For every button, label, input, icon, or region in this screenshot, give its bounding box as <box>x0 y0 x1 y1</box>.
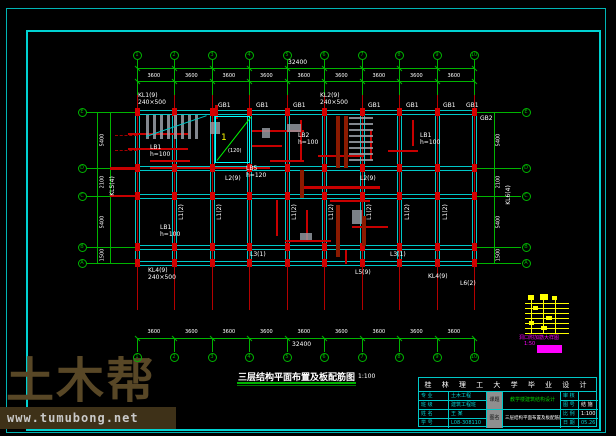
rebar-bar <box>285 240 331 242</box>
dim-text: 3600 <box>260 330 273 335</box>
legend-cell <box>540 294 548 300</box>
legend-table-line <box>555 300 556 333</box>
tb-label-major: 专 业 <box>419 392 449 401</box>
column-mark <box>285 108 290 116</box>
tb-label-scale: 比 例 <box>561 410 579 419</box>
tb-value-check <box>579 392 598 401</box>
axis-bubble-bottom: 7 <box>358 353 367 362</box>
axis-bubble-bottom: 2 <box>170 353 179 362</box>
beam-label: L1(2) <box>329 204 335 220</box>
watermark-logo: 土木帮 <box>6 356 156 406</box>
dim-text: 3600 <box>298 74 311 79</box>
beam-horizontal <box>135 194 476 199</box>
column-mark <box>397 192 402 200</box>
column-mark <box>472 108 477 116</box>
axis-stem <box>174 60 175 95</box>
stair-tread-hatch <box>349 159 373 161</box>
dim-text: 3600 <box>335 330 348 335</box>
title-underline-thin <box>237 385 356 386</box>
axis-bubble-left: E <box>78 108 87 117</box>
column-mark <box>472 192 477 200</box>
rebar-bar <box>330 200 370 202</box>
hatch-blob <box>352 210 362 224</box>
dim-text-vert: 1500 <box>101 249 106 262</box>
rebar-bar <box>252 145 282 147</box>
axis-bubble-bottom: 1 <box>133 353 142 362</box>
dim-text: 3600 <box>298 330 311 335</box>
axis-bubble-bottom: 10 <box>470 353 479 362</box>
rebar-bar <box>345 250 347 264</box>
axis-bubble-left: C <box>78 192 87 201</box>
tb-key-dwgname: 图名 <box>487 410 503 428</box>
axis-stem <box>137 60 138 95</box>
title-block-header: 桂 林 理 工 大 学 毕 业 设 计 <box>419 378 596 392</box>
tb-value-dwgno: 结 施 <box>579 401 598 410</box>
dim-text-total: 32400 <box>292 342 311 348</box>
column-mark <box>322 243 327 251</box>
beam-label: h=100 <box>150 152 170 158</box>
axis-bubble-top: 3 <box>208 51 217 60</box>
axis-line-red <box>287 265 288 310</box>
column-mark <box>210 108 215 116</box>
dim-text: 3600 <box>373 330 386 335</box>
legend-table-line <box>525 333 569 334</box>
column-mark <box>435 192 440 200</box>
column-mark <box>435 164 440 172</box>
stair-tread-hatch <box>349 147 373 149</box>
dim-text-vert: 5400 <box>101 134 106 147</box>
axis-bubble-top: 4 <box>245 51 254 60</box>
axis-bubble-top: 6 <box>320 51 329 60</box>
dim-text-vert: 2100 <box>497 176 502 189</box>
axis-bubble-top: 7 <box>358 51 367 60</box>
rebar-bar <box>412 120 414 146</box>
dim-text: 3600 <box>335 74 348 79</box>
dim-text-vert: 5400 <box>497 134 502 147</box>
column-mark <box>285 164 290 172</box>
dim-text: 3600 <box>260 74 273 79</box>
axis-stem <box>437 60 438 95</box>
tb-value-major: 土木工程 <box>449 392 487 401</box>
beam-label: KL4(9) <box>428 274 448 280</box>
tb-value-class: 建筑工程班 <box>449 401 487 410</box>
beam-label: GB2 <box>480 116 493 122</box>
tb-value-name: 王 某 <box>449 410 487 419</box>
column-mark <box>322 108 327 116</box>
beam-label: L2(9) <box>360 176 376 182</box>
hatch-blob <box>300 233 312 240</box>
stair-tread-hatch <box>349 129 373 131</box>
axis-line-red <box>324 265 325 310</box>
stair-tread-hatch <box>160 115 163 139</box>
beam-label: L2(9) <box>225 176 241 182</box>
column-mark <box>247 192 252 200</box>
axis-bubble-bottom: 8 <box>395 353 404 362</box>
axis-bubble-left: D <box>78 164 87 173</box>
beam-label: GB1 <box>293 103 306 109</box>
tb-label-date: 日 期 <box>561 419 579 428</box>
axis-bubble-right: A <box>522 259 531 268</box>
stair-tread-hatch <box>349 135 373 137</box>
axis-line-red <box>474 265 475 310</box>
axis-bubble-bottom: 5 <box>283 353 292 362</box>
beam-horizontal <box>135 110 476 115</box>
tb-value-id: L08-308110 <box>449 419 487 428</box>
beam-vertical <box>435 110 440 265</box>
hatch-blob <box>287 124 301 132</box>
dim-text: 3600 <box>185 74 198 79</box>
axis-bubble-right: C <box>522 192 531 201</box>
dim-text-vert: 2100 <box>101 176 106 189</box>
rebar-bar <box>318 155 364 157</box>
wall-mark <box>344 116 348 168</box>
beam-label: h=120 <box>246 173 266 179</box>
dim-text-total: 32400 <box>288 60 307 66</box>
wall-mark <box>336 205 340 257</box>
rebar-bar <box>352 226 388 228</box>
dim-text: 3600 <box>223 74 236 79</box>
axis-stem <box>324 60 325 95</box>
column-mark <box>472 164 477 172</box>
wall-mark <box>336 116 340 168</box>
rebar-bar <box>150 160 190 162</box>
tb-subject: 教学楼建筑结构设计 <box>503 392 561 410</box>
tb-key-subject: 课题 <box>487 392 503 410</box>
column-mark <box>322 192 327 200</box>
dim-text: 3600 <box>448 330 461 335</box>
column-mark <box>472 243 477 251</box>
beam-label: L1(2) <box>405 204 411 220</box>
axis-stub <box>474 263 521 264</box>
axis-bubble-right: D <box>522 164 531 173</box>
tb-value-date: 05.26 <box>579 419 598 428</box>
tb-label-check: 审 核 <box>561 392 579 401</box>
tb-label-name: 姓 名 <box>419 410 449 419</box>
dim-text: 3600 <box>448 74 461 79</box>
axis-bubble-bottom: 9 <box>433 353 442 362</box>
detail-number: 1 <box>221 134 227 143</box>
beam-label: L1(2) <box>443 204 449 220</box>
dim-line-top-total <box>137 68 474 69</box>
column-mark <box>360 108 365 116</box>
stair-tread-hatch <box>349 123 373 125</box>
column-mark <box>172 243 177 251</box>
axis-stem <box>212 60 213 95</box>
beam-label: L3(1) <box>250 252 266 258</box>
watermark-url: www.tumubong.net <box>7 411 139 425</box>
column-mark <box>435 108 440 116</box>
dim-text: 3600 <box>223 330 236 335</box>
column-mark <box>322 164 327 172</box>
stair-tread-hatch <box>153 115 156 139</box>
legend-cell <box>528 295 534 300</box>
rebar-bar <box>388 150 418 152</box>
legend-cell <box>541 326 547 330</box>
axis-line-red <box>174 265 175 310</box>
stair-tread-hatch <box>349 153 373 155</box>
stair-tread-hatch <box>349 141 373 143</box>
dim-chain-left <box>97 112 98 263</box>
tb-label-dwgno: 图 号 <box>561 401 579 410</box>
beam-label: 240×500 <box>138 100 166 106</box>
drawing-scale: 1:100 <box>358 373 375 380</box>
tb-dwgname: 三层结构平面布置及板配筋图 <box>503 410 561 428</box>
axis-line-red <box>399 265 400 310</box>
axis-stem <box>474 60 475 95</box>
dim-text: 3600 <box>373 74 386 79</box>
column-mark <box>285 243 290 251</box>
axis-line-red <box>437 265 438 310</box>
rebar-dashed <box>115 135 137 136</box>
beam-label: KL5(4) <box>110 176 116 196</box>
beam-label: GB1 <box>443 103 456 109</box>
axis-bubble-left: B <box>78 243 87 252</box>
beam-label: GB1 <box>218 103 231 109</box>
rebar-bar <box>300 186 380 189</box>
axis-stub <box>87 263 137 264</box>
axis-bubble-right: B <box>522 243 531 252</box>
axis-stub <box>87 112 137 113</box>
stair-tread-hatch <box>349 117 373 119</box>
rebar-bar <box>276 200 278 236</box>
axis-stem <box>249 60 250 95</box>
legend-cell <box>529 321 534 325</box>
axis-stem <box>362 60 363 95</box>
stair-tread-hatch <box>181 115 184 139</box>
axis-bubble-right: E <box>522 108 531 117</box>
beam-label: GB1 <box>466 103 479 109</box>
cad-drawing-viewport[interactable]: 三层结构平面布置及板配筋图 1:100 洞口附加筋大样图 1:50 桂 林 理 … <box>0 0 616 436</box>
beam-label: L1(2) <box>217 204 223 220</box>
beam-label: 240×500 <box>320 100 348 106</box>
axis-stem <box>399 60 400 95</box>
column-mark <box>360 164 365 172</box>
column-mark <box>397 243 402 251</box>
tb-label-id: 学 号 <box>419 419 449 428</box>
beam-label: (120) <box>228 149 241 154</box>
beam-label: L3(1) <box>390 252 406 258</box>
beam-label: GB1 <box>256 103 269 109</box>
beam-label: L1(2) <box>179 204 185 220</box>
axis-bubble-top: 1 <box>133 51 142 60</box>
axis-line-red <box>249 265 250 310</box>
legend-scale: 1:50 <box>524 341 535 347</box>
beam-label: L6(2) <box>460 281 476 287</box>
axis-stub <box>474 196 521 197</box>
column-mark <box>285 192 290 200</box>
dim-line-bottom <box>137 338 474 339</box>
axis-bubble-bottom: 3 <box>208 353 217 362</box>
beam-label: GB1 <box>406 103 419 109</box>
beam-label: L1(2) <box>292 204 298 220</box>
column-mark <box>210 192 215 200</box>
axis-stub <box>474 112 521 113</box>
column-mark <box>435 243 440 251</box>
column-mark <box>397 108 402 116</box>
tb-value-scale: 1:100 <box>579 410 598 419</box>
hatch-blob <box>262 128 270 138</box>
dim-text-vert: 1500 <box>497 249 502 262</box>
beam-horizontal <box>135 261 476 266</box>
rebar-bar <box>270 160 304 162</box>
beam-label: L5(9) <box>355 270 371 276</box>
column-mark <box>247 243 252 251</box>
axis-stub <box>87 247 137 248</box>
beam-label: 240×500 <box>148 275 176 281</box>
legend-cell <box>552 296 557 300</box>
beam-label: h=100 <box>160 232 180 238</box>
rebar-bar <box>110 167 137 170</box>
beam-label: GB1 <box>368 103 381 109</box>
column-mark <box>135 243 140 251</box>
column-mark <box>360 192 365 200</box>
column-mark <box>397 164 402 172</box>
axis-line-red <box>212 265 213 310</box>
axis-bubble-top: 8 <box>395 51 404 60</box>
axis-bubble-left: A <box>78 259 87 268</box>
beam-label: L1(2) <box>367 204 373 220</box>
legend-table-line <box>531 300 532 333</box>
axis-line-red <box>137 265 138 310</box>
legend-cell <box>533 306 538 310</box>
wall-mark <box>362 216 366 246</box>
dim-text: 3600 <box>410 330 423 335</box>
dim-text-vert: 5400 <box>497 215 502 228</box>
dim-text: 3600 <box>148 74 161 79</box>
tb-label-class: 班 级 <box>419 401 449 410</box>
beam-vertical <box>472 110 477 265</box>
beam-label: h=100 <box>420 140 440 146</box>
beam-vertical <box>397 110 402 265</box>
dim-text: 3600 <box>148 330 161 335</box>
title-underline <box>237 382 356 384</box>
column-mark <box>135 108 140 116</box>
dim-line-top-bays <box>137 81 474 82</box>
stair-tread-hatch <box>188 115 191 139</box>
dim-text: 3600 <box>410 74 423 79</box>
legend-cell <box>546 316 552 320</box>
title-block: 桂 林 理 工 大 学 毕 业 设 计 专 业 土木工程 班 级 建筑工程班 姓… <box>418 377 597 427</box>
rebar-bar <box>128 133 188 135</box>
rebar-dashed <box>115 150 137 151</box>
wall-mark <box>300 170 304 198</box>
beam-label: h=100 <box>298 140 318 146</box>
dim-text-vert: 5400 <box>101 215 106 228</box>
axis-bubble-bottom: 4 <box>245 353 254 362</box>
dim-text: 3600 <box>185 330 198 335</box>
axis-bubble-top: 2 <box>170 51 179 60</box>
axis-bubble-bottom: 6 <box>320 353 329 362</box>
column-mark <box>210 243 215 251</box>
axis-stub <box>474 168 521 169</box>
beam-horizontal <box>135 245 476 250</box>
legend-block <box>537 345 562 353</box>
axis-bubble-top: 9 <box>433 51 442 60</box>
axis-bubble-top: 10 <box>470 51 479 60</box>
column-mark <box>247 108 252 116</box>
beam-label: KL6(4) <box>506 185 512 205</box>
column-mark <box>172 192 177 200</box>
